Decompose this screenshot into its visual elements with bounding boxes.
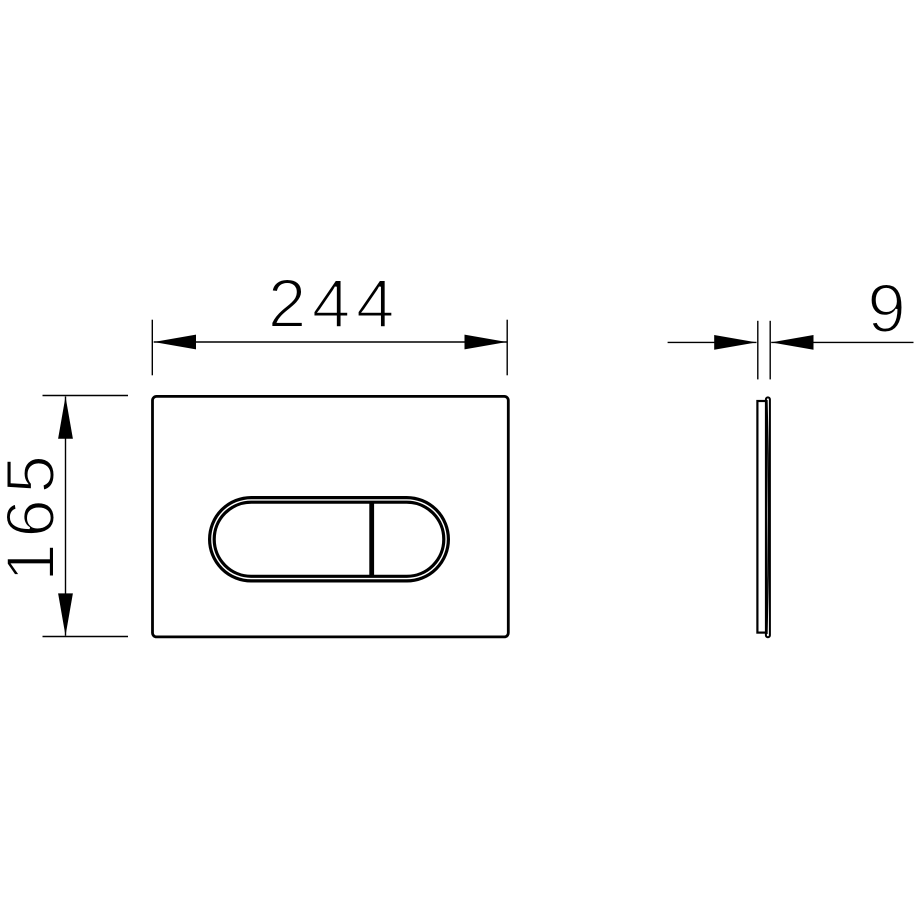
svg-text:244: 244 [268,265,400,342]
svg-text:9: 9 [867,270,905,347]
svg-text:165: 165 [0,449,69,581]
